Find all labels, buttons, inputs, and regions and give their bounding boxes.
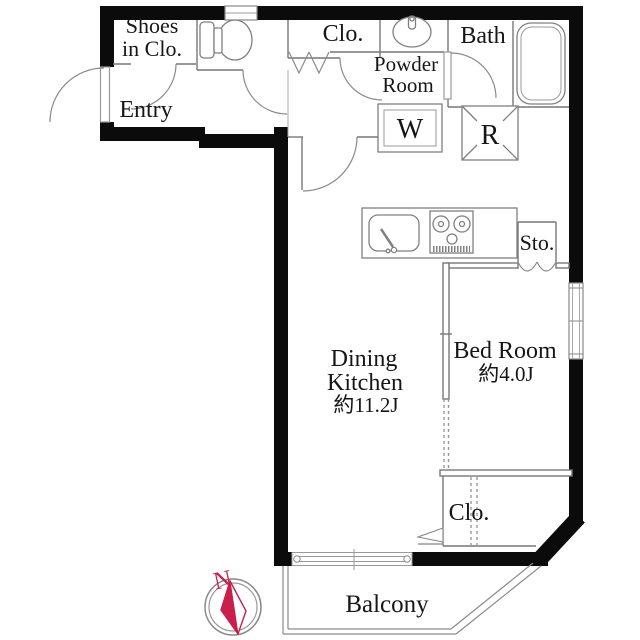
powder-room-label-line2: Room [382,73,433,97]
refrigerator-label: R [481,120,500,151]
dining-kitchen-label-line1: Dining [331,346,398,372]
shoes-closet-label-line2: in Clo. [122,36,182,61]
compass-icon: N [205,565,261,635]
washer-label: W [397,114,424,145]
entry-label: Entry [119,97,172,123]
closet-top-label: Clo. [323,21,364,47]
interior-walls [113,20,572,546]
closet-bottom-label: Clo. [449,500,490,526]
toilet-icon [200,20,252,60]
kitchen-counter [362,208,517,258]
storage-folding-doors [518,262,556,271]
dining-kitchen-door [303,137,357,191]
closet-top-folding-door [289,52,329,73]
toilet-window [225,6,257,20]
floor-plan-page: N Shoes in Clo. Entry Clo. Powder Room B… [0,0,640,640]
toilet-door [243,70,287,114]
washbasin-icon [393,16,431,47]
bed-room-label: Bed Room [453,338,557,364]
room-labels: Shoes in Clo. Entry Clo. Powder Room Bat… [119,13,557,618]
bed-room-area-label: 約4.0J [478,362,533,386]
bath-door [444,52,496,99]
stove-icon [430,211,473,253]
floor-plan: N Shoes in Clo. Entry Clo. Powder Room B… [0,0,640,640]
shoes-closet-label-line1: Shoes [126,13,179,38]
balcony-label: Balcony [345,591,429,618]
dining-kitchen-area-label: 約11.2J [333,393,398,417]
outer-walls [101,6,583,566]
kitchen-sink-icon [369,215,419,253]
storage-label: Sto. [520,230,555,255]
bath-label: Bath [460,23,505,49]
bedroom-window [569,283,583,359]
entry-door [50,67,110,122]
bathtub-icon [517,23,565,104]
balcony-sliding-door [292,549,412,570]
